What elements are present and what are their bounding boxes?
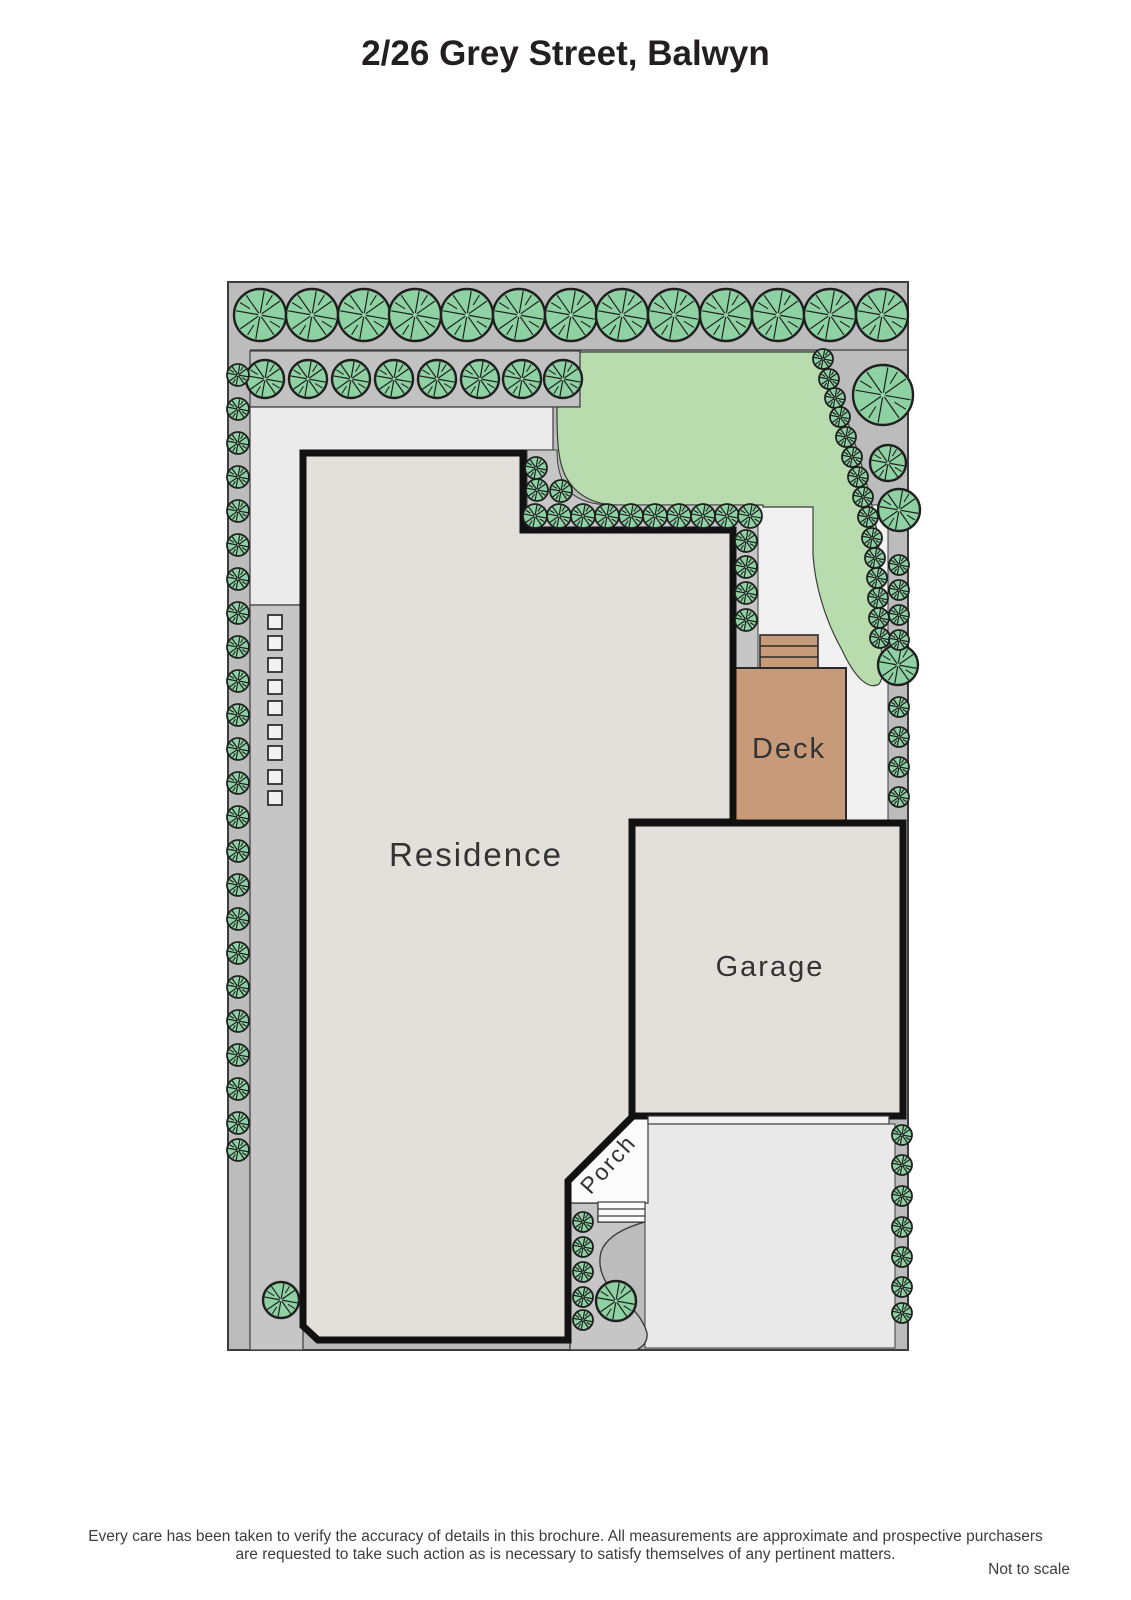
bush-icon [842,447,862,467]
bush-icon [892,1155,912,1175]
stepping-stones-layer [268,615,282,805]
bush-icon [227,568,249,590]
bush-icon [227,772,249,794]
bush-icon [865,548,885,568]
bush-icon [227,670,249,692]
scale-note: Not to scale [988,1561,1070,1579]
bush-icon [870,628,890,648]
bush-icon [836,427,856,447]
bush-icon [227,840,249,862]
bush-icon [735,530,757,552]
bush-icon [227,1139,249,1161]
tree-icon [461,360,499,398]
bush-icon [892,1217,912,1237]
bush-icon [573,1287,593,1307]
bush-icon [735,582,757,604]
bush-icon [227,1010,249,1032]
tree-icon [289,360,327,398]
bush-icon [523,504,547,528]
bush-icon [892,1186,912,1206]
tree-icon [804,289,856,341]
bush-icon [227,806,249,828]
bush-icon [889,580,909,600]
tree-icon [752,289,804,341]
bush-icon [547,504,571,528]
bush-icon [227,738,249,760]
deck-label: Deck [752,733,826,765]
bush-icon [643,504,667,528]
tree-icon [418,360,456,398]
bush-icon [227,398,249,420]
bush-icon [573,1237,593,1257]
bush-icon [573,1262,593,1282]
bush-icon [573,1310,593,1330]
porch-steps [598,1202,645,1222]
bush-icon [227,942,249,964]
bush-icon [889,757,909,777]
bush-icon [227,1044,249,1066]
tree-icon [389,289,441,341]
bush-icon [738,504,762,528]
tree-icon [853,365,913,425]
bush-icon [735,609,757,631]
tree-icon [263,1282,299,1318]
deck-steps [760,635,818,668]
stepping-stone [268,791,282,805]
bush-icon [525,457,547,479]
side-path [250,605,303,1350]
bush-icon [848,467,868,487]
disclaimer-line1: Every care has been taken to verify the … [0,1528,1131,1546]
bush-icon [526,479,548,501]
residence-label: Residence [389,836,563,873]
bush-icon [892,1125,912,1145]
bush-icon [227,432,249,454]
tree-icon [375,360,413,398]
bush-icon [892,1277,912,1297]
stepping-stone [268,701,282,715]
bush-icon [892,1303,912,1323]
tree-icon [648,289,700,341]
bush-icon [227,602,249,624]
tree-icon [596,1281,636,1321]
tree-icon [246,360,284,398]
bush-icon [868,588,888,608]
stepping-stone [268,770,282,784]
bush-icon [819,369,839,389]
brochure-page: 2/26 Grey Street, Balwyn [0,0,1131,1600]
stepping-stone [268,725,282,739]
tree-icon [878,645,918,685]
tree-icon [441,289,493,341]
bush-icon [667,504,691,528]
stepping-stone [268,680,282,694]
bush-icon [550,480,572,502]
bush-icon [227,976,249,998]
bush-icon [227,636,249,658]
tree-icon [545,289,597,341]
tree-icon [286,289,338,341]
bush-icon [889,727,909,747]
stepping-stone [268,636,282,650]
bush-icon [571,504,595,528]
bush-icon [227,1112,249,1134]
bush-icon [619,504,643,528]
stepping-stone [268,658,282,672]
bush-icon [825,388,845,408]
tree-icon [234,289,286,341]
bush-icon [869,608,889,628]
bush-icon [889,697,909,717]
tree-icon [870,445,906,481]
tree-icon [878,489,920,531]
bush-icon [227,874,249,896]
disclaimer-line2: are requested to take such action as is … [0,1546,1131,1564]
bush-icon [889,787,909,807]
bush-icon [227,704,249,726]
bush-icon [892,1247,912,1267]
bush-icon [227,1078,249,1100]
tree-icon [596,289,648,341]
bush-icon [735,556,757,578]
stepping-stone [268,615,282,629]
tree-icon [503,360,541,398]
bush-icon [227,500,249,522]
bush-icon [862,528,882,548]
bush-icon [813,349,833,369]
bush-icon [573,1212,593,1232]
bush-icon [830,407,850,427]
bush-icon [595,504,619,528]
driveway [645,1124,895,1348]
bush-icon [889,630,909,650]
bush-icon [691,504,715,528]
bush-icon [715,504,739,528]
bush-icon [227,534,249,556]
site-plan: Residence Garage Deck Porch [0,0,1131,1600]
bush-icon [853,487,873,507]
bush-icon [227,364,249,386]
bush-icon [227,908,249,930]
bush-icon [889,605,909,625]
tree-icon [332,360,370,398]
bush-icon [227,466,249,488]
bush-icon [889,555,909,575]
bush-icon [858,507,878,527]
stepping-stone [268,746,282,760]
tree-icon [700,289,752,341]
tree-icon [493,289,545,341]
garage-label: Garage [716,951,825,983]
tree-icon [544,360,582,398]
tree-icon [856,289,908,341]
bush-icon [867,568,887,588]
tree-icon [338,289,390,341]
garage-door [648,1116,889,1124]
